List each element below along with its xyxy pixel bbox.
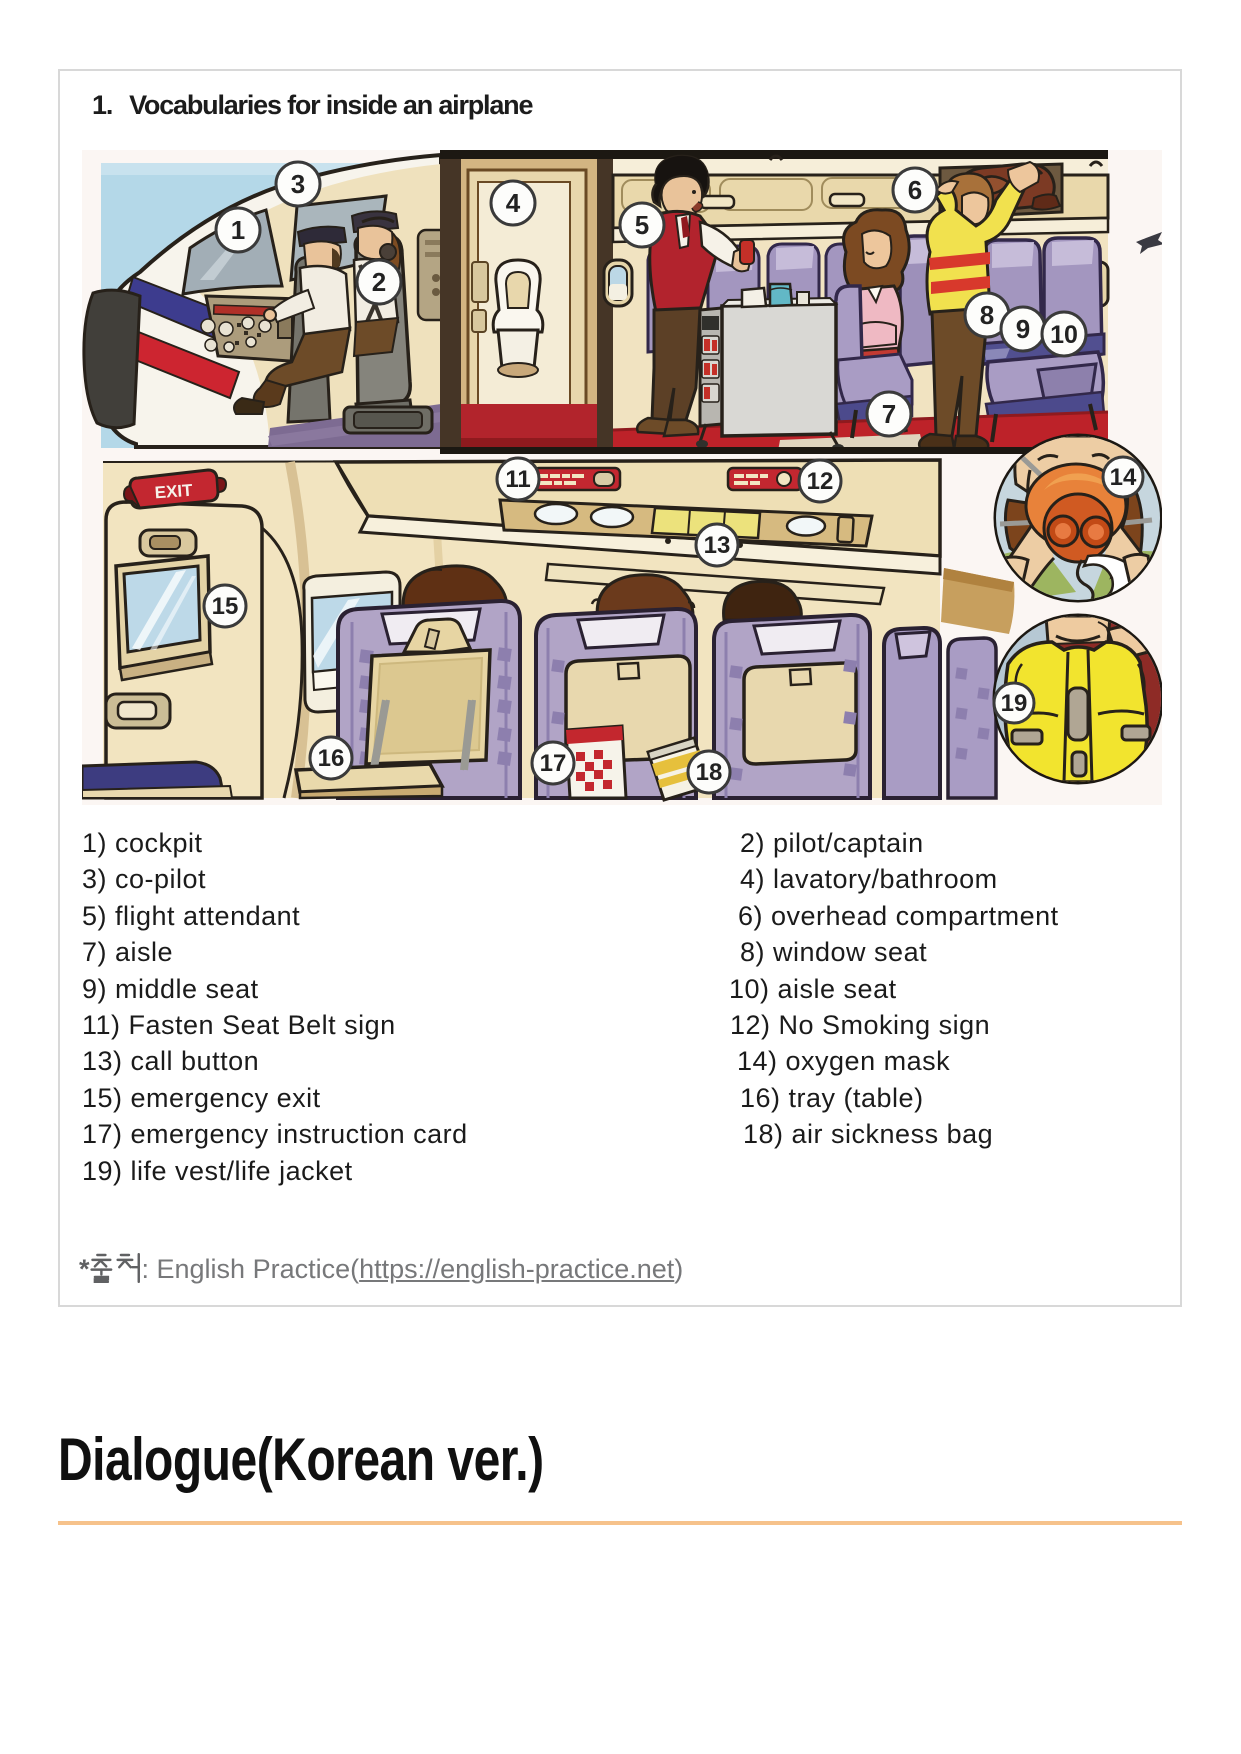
svg-text:11: 11	[505, 466, 530, 493]
svg-text:EXIT: EXIT	[154, 481, 194, 503]
svg-text:4: 4	[506, 188, 521, 218]
svg-text:7: 7	[882, 399, 896, 429]
svg-text:6: 6	[908, 175, 922, 205]
svg-text:16: 16	[318, 745, 345, 772]
svg-text:3: 3	[291, 169, 305, 199]
svg-text:2: 2	[372, 267, 386, 297]
svg-text:18: 18	[696, 759, 723, 786]
svg-text:5: 5	[635, 210, 649, 240]
svg-text:10: 10	[1050, 321, 1078, 349]
svg-text:1: 1	[231, 215, 245, 245]
svg-text:19: 19	[1001, 690, 1028, 717]
svg-text:9: 9	[1016, 314, 1030, 344]
svg-text:13: 13	[704, 532, 731, 559]
svg-text:14: 14	[1110, 464, 1137, 491]
svg-text:12: 12	[807, 468, 834, 495]
svg-text:8: 8	[980, 300, 994, 330]
svg-text:15: 15	[212, 593, 239, 620]
svg-text:17: 17	[540, 750, 567, 777]
